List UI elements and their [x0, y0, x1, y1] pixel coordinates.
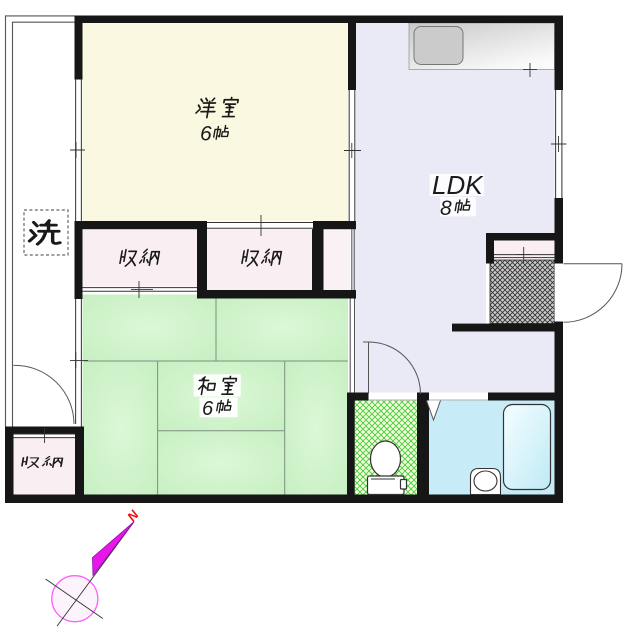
svg-text:6: 6 — [200, 123, 212, 146]
svg-text:8: 8 — [440, 197, 452, 220]
svg-text:6: 6 — [202, 398, 214, 420]
svg-text:LDK: LDK — [432, 170, 484, 200]
